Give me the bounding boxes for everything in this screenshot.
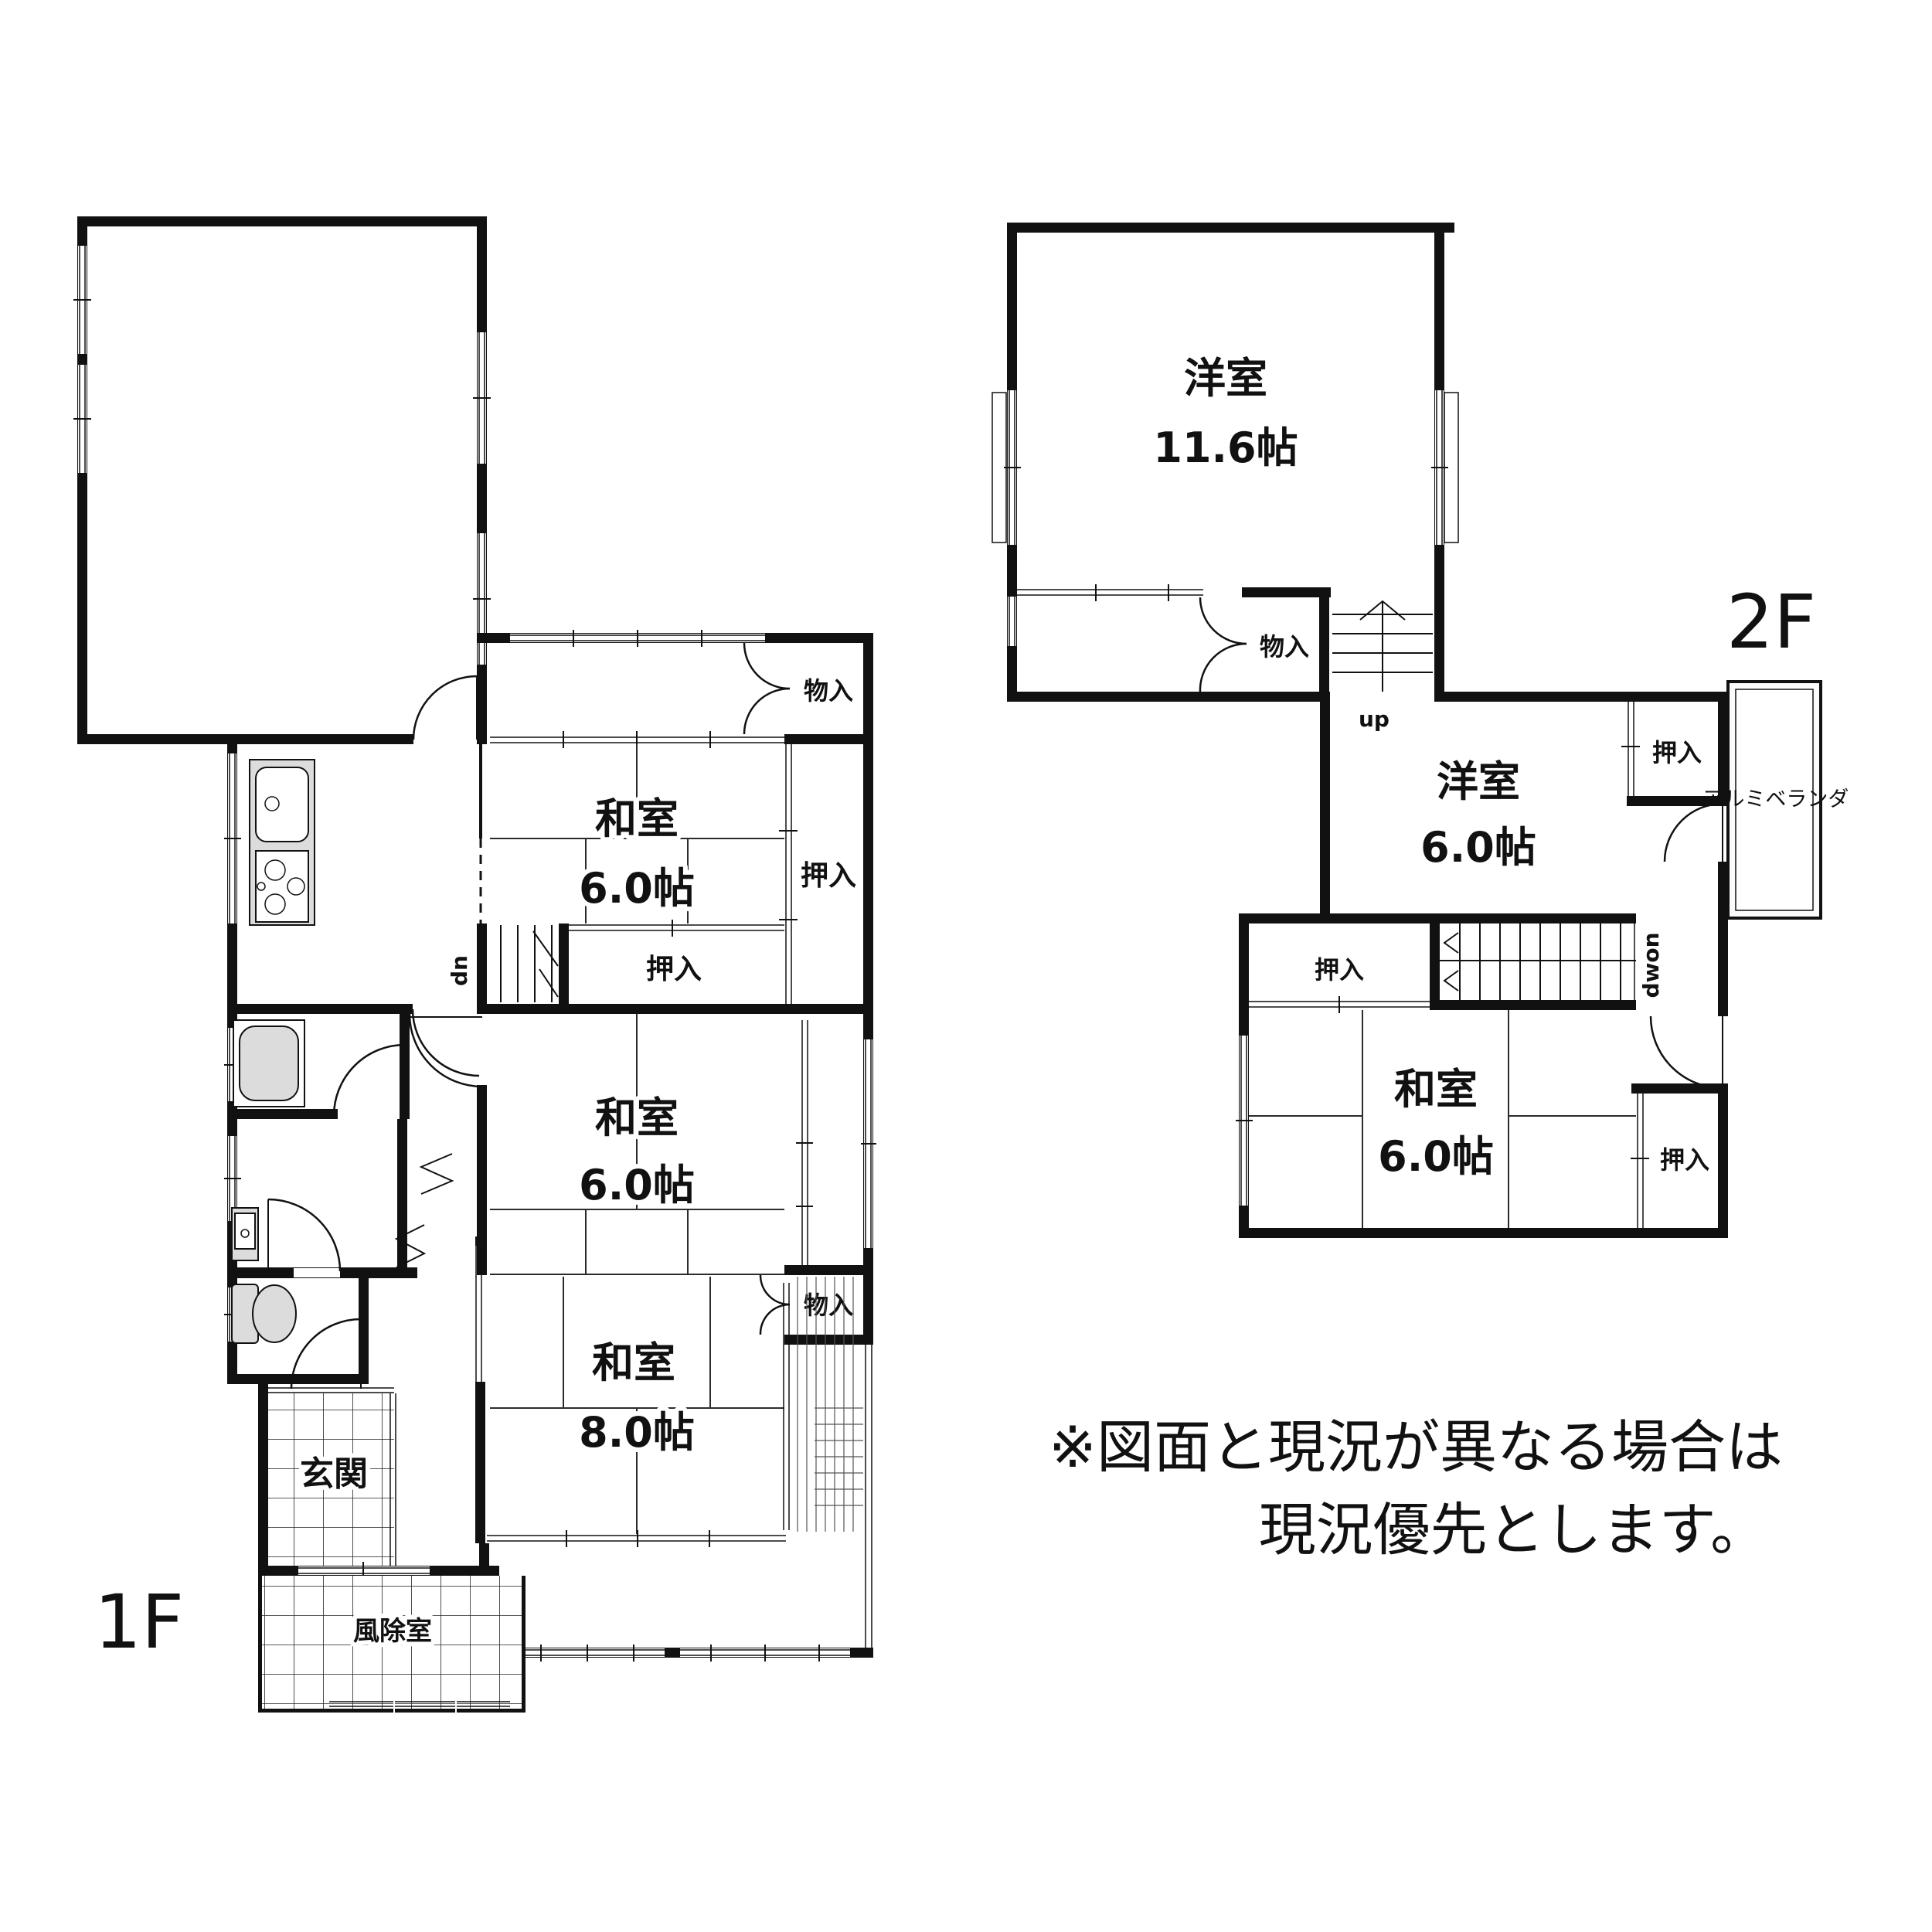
washitsu1-size: 6.0帖	[579, 864, 695, 913]
yoshitsu1-name: 洋室	[1184, 354, 1267, 403]
stairs-down-arrow	[1444, 971, 1458, 991]
storage-room-walls	[73, 216, 491, 744]
yoshitsu2-name: 洋室	[1437, 757, 1520, 806]
bathroom	[224, 1014, 410, 1119]
closet-low-label: 物入	[804, 1291, 853, 1320]
note-line2: 現況優先とします。	[1259, 1497, 1768, 1563]
yoshitsu1: 洋室 11.6帖	[992, 223, 1728, 702]
floorplan-drawing: 物入 和室 6.0帖 押入 dn	[0, 0, 1932, 1932]
oshiire-mid: 押入	[477, 920, 873, 1014]
washitsu3-size: 8.0帖	[579, 1408, 695, 1457]
genkan-label: 玄関	[300, 1454, 368, 1494]
stairs-1f: dn	[447, 923, 569, 1014]
washitsu-2f-size: 6.0帖	[1378, 1132, 1494, 1181]
washitsu2: 和室 6.0帖	[410, 1014, 813, 1275]
wall-break-symbol	[421, 1154, 452, 1194]
oshiire-west-2f: 押入	[1249, 955, 1430, 1013]
closet-2f: 物入	[1200, 587, 1331, 702]
disclaimer-note: ※図面と現況が異なる場合は 現況優先とします。	[1049, 1414, 1783, 1563]
washitsu3: 和室 8.0帖	[475, 1236, 789, 1547]
closet-top: 物入	[744, 643, 853, 734]
stairs-down-arrow	[1444, 933, 1458, 953]
washitsu1-name: 和室	[595, 794, 679, 843]
oshiire-side-label: 押入	[801, 860, 856, 892]
sun-porch	[479, 1543, 873, 1662]
washitsu2-size: 6.0帖	[579, 1161, 695, 1209]
oshiire-east-label: 押入	[1660, 1145, 1709, 1175]
oshiire-mid-label: 押入	[646, 954, 702, 985]
stair-down-2f-label: dwon	[1638, 932, 1664, 998]
stair-up-label: up	[1359, 706, 1389, 732]
kitchen-sink	[256, 767, 308, 842]
yoshitsu2-size: 6.0帖	[1420, 823, 1536, 872]
floor1-label: 1F	[94, 1579, 184, 1665]
closet-2f-label: 物入	[1260, 632, 1309, 662]
floor2-label: 2F	[1726, 579, 1816, 665]
floorplan-page: 物入 和室 6.0帖 押入 dn	[0, 0, 1932, 1932]
note-line1: ※図面と現況が異なる場合は	[1049, 1414, 1783, 1481]
closet-low: 物入	[760, 1265, 873, 1345]
toilet-bowl	[253, 1285, 296, 1342]
veranda-label: アルミベランダ	[1703, 787, 1849, 811]
floor2-plan: 洋室 11.6帖 物入 up 洋室 6.0帖	[992, 223, 1849, 1238]
washitsu2-name: 和室	[595, 1094, 679, 1142]
floor1-plan: 物入 和室 6.0帖 押入 dn	[73, 216, 876, 1713]
closet-top-label: 物入	[804, 676, 853, 706]
bathtub-inner	[240, 1026, 298, 1100]
oshiire-ne-label: 押入	[1652, 738, 1702, 767]
windbreak-room: 風除室	[258, 1562, 526, 1713]
washroom	[224, 1119, 452, 1271]
windbreak-label: 風除室	[353, 1616, 432, 1647]
oshiire-west-label: 押入	[1315, 955, 1364, 985]
genkan: 玄関	[258, 1319, 396, 1576]
washitsu-2f-name: 和室	[1394, 1065, 1478, 1114]
stairs-up-2f: up	[1332, 601, 1433, 732]
stair-down-1f-label: dn	[447, 955, 472, 986]
washitsu-2f: 和室 6.0帖 押入	[1236, 1010, 1728, 1238]
engawa-veranda-floorboards	[798, 1277, 872, 1648]
yoshitsu1-size: 11.6帖	[1153, 423, 1298, 472]
washitsu3-name: 和室	[592, 1338, 675, 1387]
